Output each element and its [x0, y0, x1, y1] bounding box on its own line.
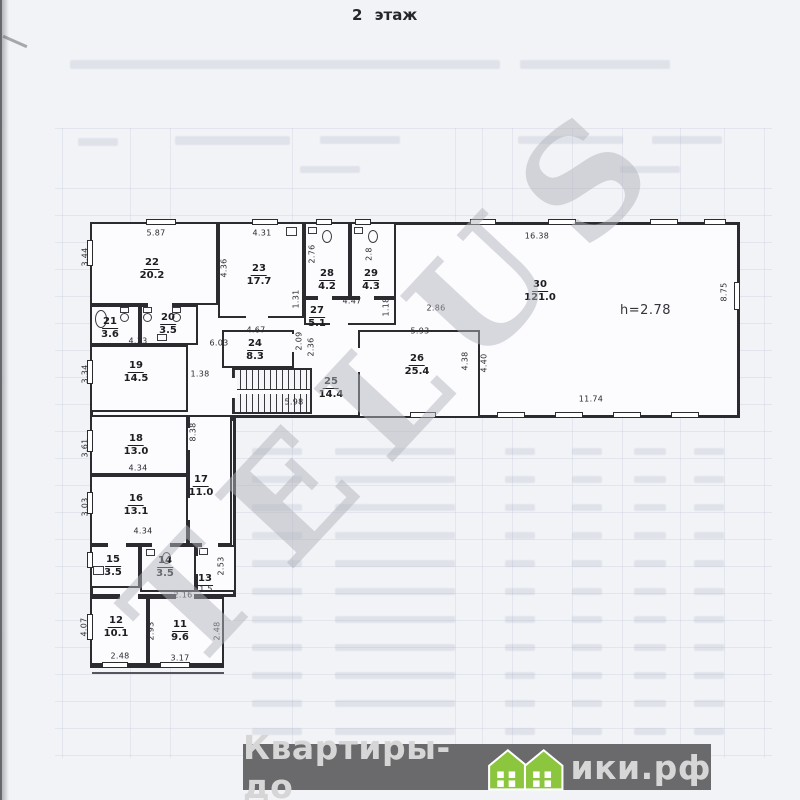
room-label-20: 203.5: [159, 305, 177, 337]
room-label-19: 1914.5: [124, 353, 149, 385]
window-marker: [146, 219, 176, 225]
dimension-label: 8.38: [189, 422, 198, 441]
room-label-28: 284.2: [318, 261, 336, 293]
window-marker: [252, 219, 278, 225]
room-number: 21: [102, 316, 118, 329]
room-number: 16: [128, 493, 144, 506]
room-area: 5.1: [308, 318, 326, 330]
dimension-label: 8.75: [720, 282, 729, 301]
dimension-label: 4.33: [128, 337, 147, 346]
dimension-label: 5.87: [146, 229, 165, 238]
window-marker: [613, 412, 641, 418]
bathroom-fixture: [368, 230, 378, 243]
room-area: 3.6: [101, 329, 119, 341]
page-title: 2 этаж: [352, 6, 417, 24]
room-label-22: 2220.2: [140, 250, 165, 282]
dimension-label: 4.67: [246, 326, 265, 335]
dimension-label: 4.36: [220, 258, 229, 277]
room-label-23: 2317.7: [247, 256, 272, 288]
window-marker: [555, 412, 583, 418]
room-area: 4.2: [318, 281, 336, 293]
dimension-label: 11.74: [579, 395, 603, 404]
window-marker: [316, 219, 332, 225]
window-marker: [734, 282, 740, 310]
dimension-label: 1.38: [190, 370, 209, 379]
dimension-label: 6.03: [209, 339, 228, 348]
room-number: 18: [128, 433, 144, 446]
door-opening: [188, 390, 193, 412]
room-area: 13.1: [124, 506, 149, 518]
window-marker: [355, 219, 371, 225]
logo-text-prefix: Квартиры-до: [243, 728, 486, 800]
window-marker: [497, 412, 525, 418]
dimension-label: 4.34: [128, 464, 147, 473]
site-logo-bar: Квартиры-до ики.рф: [243, 744, 711, 790]
room-area: 17.7: [247, 276, 272, 288]
dimension-label: 1.31: [292, 289, 301, 308]
room-number: 12: [108, 615, 124, 628]
scan-edge-line: [0, 0, 2, 800]
room-label-21: 213.6: [101, 309, 119, 341]
window-marker: [671, 412, 699, 418]
room-number: 28: [319, 268, 335, 281]
room-area: 3.5: [159, 325, 177, 337]
dimension-label: 2.09: [295, 331, 304, 350]
room-area: 20.2: [140, 270, 165, 282]
dimension-label: 3.61: [81, 438, 90, 457]
room-label-24: 248.3: [246, 331, 264, 363]
dimension-label: 3.03: [81, 497, 90, 516]
room-area: 13.0: [124, 446, 149, 458]
room-area: 14.5: [124, 373, 149, 385]
logo-text-suffix: ики.рф: [570, 748, 711, 787]
dimension-label: 2.76: [308, 244, 317, 263]
room-label-16: 1613.1: [124, 486, 149, 518]
ceiling-height-note: h=2.78: [620, 303, 671, 318]
bathroom-fixture: [308, 227, 317, 234]
window-marker: [102, 662, 128, 668]
green-houses-icon: [483, 747, 573, 791]
dimension-label: 4.07: [80, 617, 89, 636]
room-area: 8.3: [246, 351, 264, 363]
dimension-label: 3.44: [81, 247, 90, 266]
room-number: 22: [144, 257, 160, 270]
room-number: 24: [247, 338, 263, 351]
room-label-18: 1813.0: [124, 426, 149, 458]
dimension-label: 2.48: [110, 652, 129, 661]
dimension-label: 2.8: [365, 247, 374, 261]
door-opening: [232, 378, 237, 398]
room-label-27: 275.1: [308, 298, 326, 330]
bathroom-fixture: [120, 313, 129, 322]
dimension-label: 4.31: [252, 229, 271, 238]
window-marker: [704, 219, 726, 225]
room-number: 23: [251, 263, 267, 276]
door-opening: [246, 315, 268, 321]
bathroom-fixture: [322, 230, 332, 243]
room-number: 27: [309, 305, 325, 318]
bathroom-fixture: [143, 313, 152, 322]
scanned-floorplan-page: 2 этаж 2220.22317.7284.2294.3275.130121.…: [0, 0, 800, 800]
bathroom-fixture: [286, 227, 297, 236]
room-number: 20: [160, 312, 176, 325]
bathroom-fixture: [354, 227, 363, 234]
room-number: 19: [128, 360, 144, 373]
dimension-label: 3.34: [81, 364, 90, 383]
room-area: 10.1: [104, 628, 129, 640]
